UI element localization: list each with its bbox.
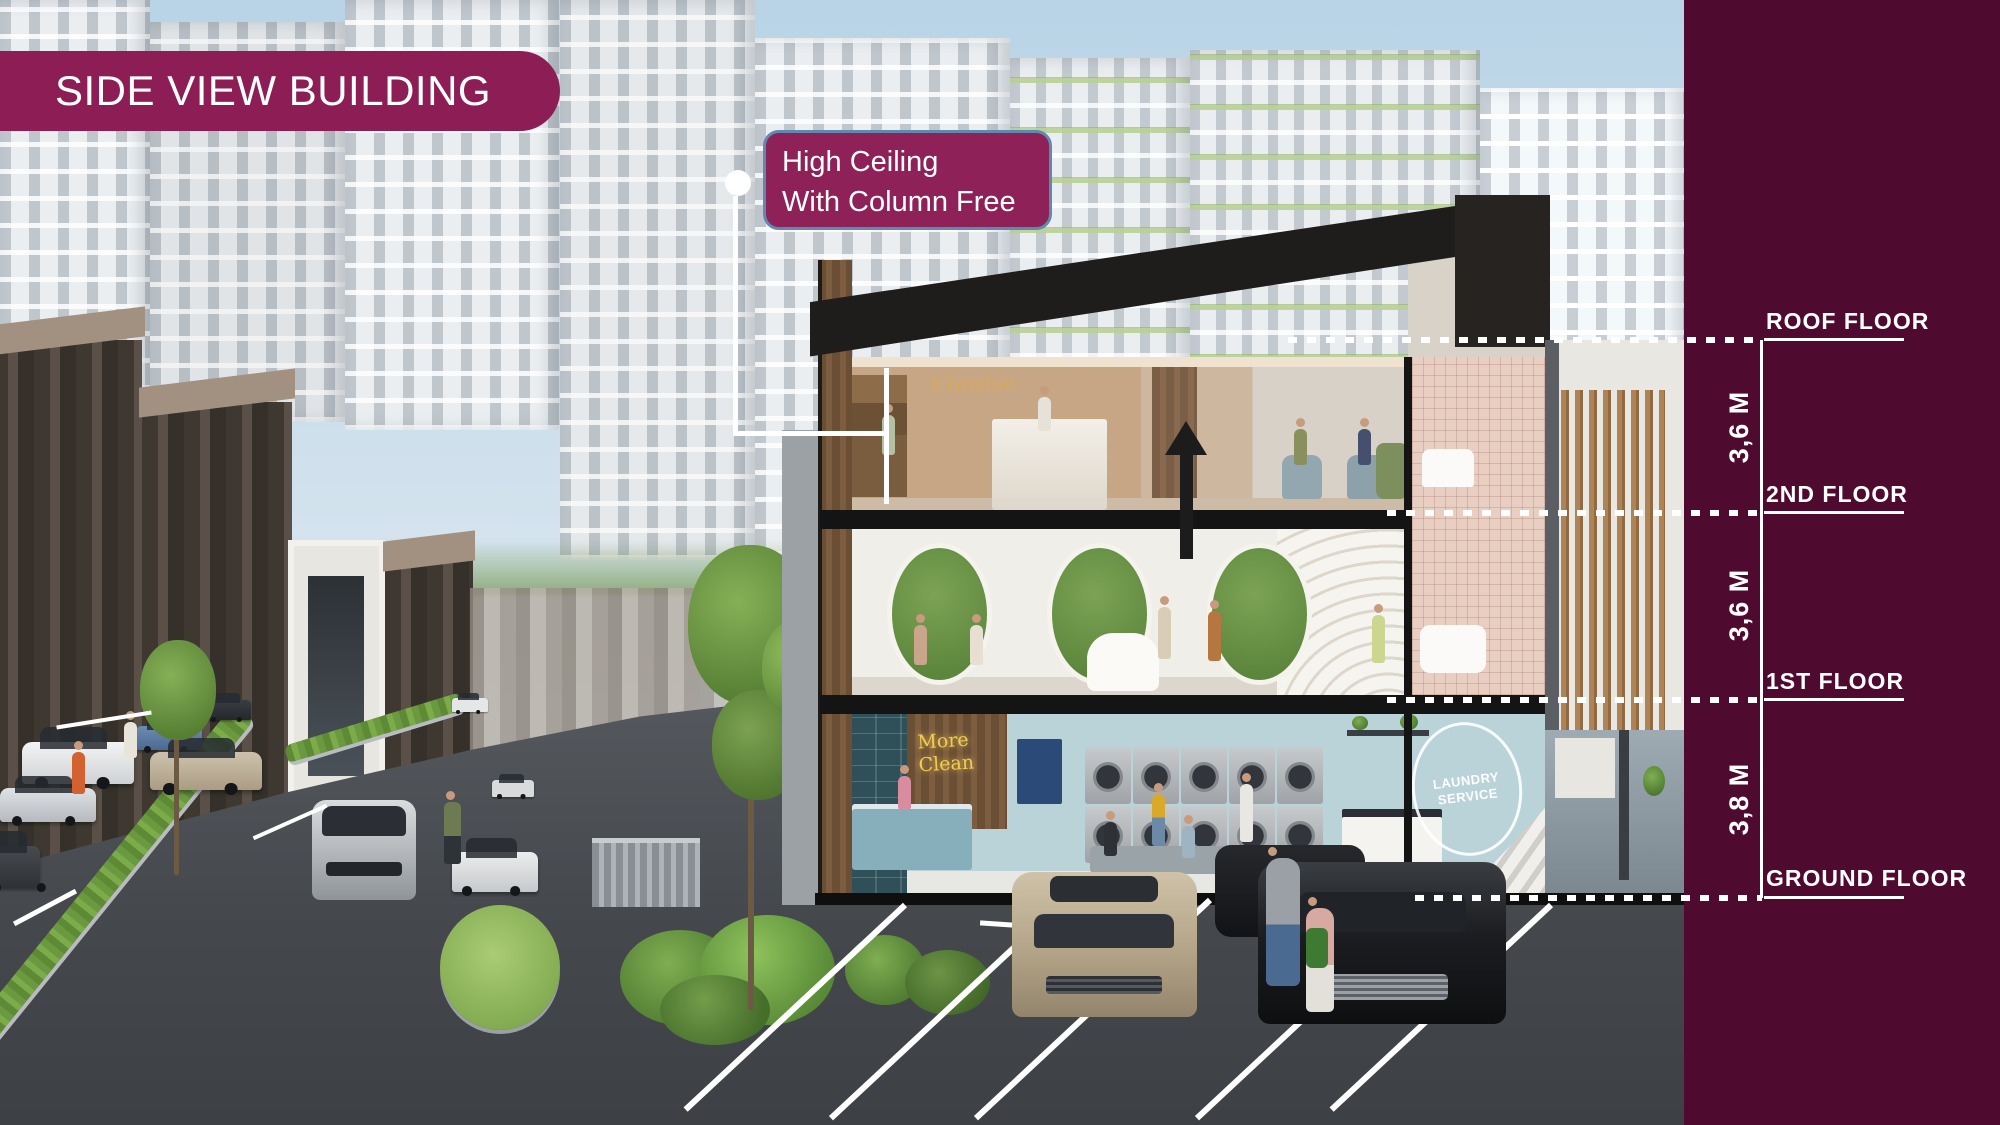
slide-title: SIDE VIEW BUILDING <box>55 67 491 114</box>
dotted-line-ground <box>1415 895 1762 901</box>
door-frame <box>1619 730 1629 880</box>
neon-line1: More <box>917 729 974 755</box>
leader-line-horizontal <box>733 431 886 436</box>
neon-sign: More Clean <box>917 729 975 777</box>
glass-interior <box>1545 730 1684 893</box>
interior-wall <box>1555 738 1615 798</box>
person <box>1240 784 1253 842</box>
driving-car <box>312 800 416 905</box>
label-2nd-floor: 2ND FLOOR <box>1766 481 1908 508</box>
poster <box>1017 739 1062 804</box>
underline <box>1764 338 1904 341</box>
tree-trunk <box>748 770 754 1010</box>
foreground-sedan <box>1012 872 1197 1020</box>
bathroom-strip <box>1412 357 1545 695</box>
person <box>898 776 911 810</box>
moss-mirror <box>1207 543 1312 685</box>
plant <box>1352 716 1368 730</box>
arrow-shaft <box>1180 447 1193 559</box>
pedestrian <box>72 752 85 794</box>
underline <box>1764 698 1904 701</box>
callout-box: High Ceiling With Column Free <box>763 130 1052 230</box>
grille <box>326 862 402 876</box>
washing-machine <box>1181 747 1227 804</box>
backpack <box>1306 928 1328 968</box>
man-figure <box>1266 858 1300 986</box>
person <box>1294 429 1307 465</box>
callout-dot <box>725 170 751 196</box>
jogger <box>444 802 461 864</box>
height-2nd: 3,6 M <box>1722 357 1756 497</box>
salon-sign: Elouise <box>930 369 1017 397</box>
parked-car <box>0 846 40 888</box>
person <box>970 625 983 665</box>
tree <box>140 640 216 740</box>
person <box>1104 822 1117 856</box>
salon-interior: Elouise <box>852 357 1408 510</box>
side-wall <box>782 430 820 905</box>
person <box>1208 611 1221 661</box>
windshield <box>1034 914 1174 948</box>
dotted-line-roof <box>1288 337 1762 343</box>
dotted-line-2nd <box>1387 510 1762 516</box>
shelf <box>1347 730 1429 736</box>
callout-line2: With Column Free <box>782 182 1049 222</box>
parked-car <box>452 852 538 892</box>
dotted-line-1st <box>1387 697 1762 703</box>
floor <box>852 498 1408 510</box>
washing-machine <box>1277 747 1323 804</box>
leader-line-ceiling <box>884 368 889 504</box>
neon-line2: Clean <box>918 751 975 777</box>
person <box>1358 429 1371 465</box>
slide: Elouise <box>0 0 2000 1125</box>
grille <box>1316 974 1448 1000</box>
callout-line1: High Ceiling <box>782 142 1049 182</box>
reception-desk <box>992 419 1107 510</box>
grille <box>1046 976 1162 994</box>
lawn-island <box>440 905 560 1030</box>
laundry-desk <box>852 804 972 870</box>
shelf <box>852 375 907 497</box>
wood-column <box>818 260 852 905</box>
parked-car <box>492 780 534 797</box>
person <box>1038 397 1051 431</box>
background-tower <box>560 0 755 560</box>
label-ground-floor: GROUND FLOOR <box>1766 865 1967 892</box>
bath-fixture <box>1420 625 1486 673</box>
height-ground: 3,8 M <box>1722 729 1756 869</box>
leader-line-vertical <box>733 196 738 436</box>
wood-slats <box>1561 390 1665 730</box>
fin-strip <box>1545 340 1559 730</box>
windshield <box>322 806 406 836</box>
person <box>1182 826 1195 858</box>
tree-trunk <box>174 735 179 875</box>
person <box>1372 615 1385 663</box>
cutaway-building: Elouise <box>780 195 1684 905</box>
person <box>1152 794 1165 846</box>
plant <box>1643 766 1665 796</box>
wall-edge <box>1404 357 1412 893</box>
round-desk <box>1087 633 1159 691</box>
pedestrian <box>124 722 137 758</box>
person <box>1158 607 1171 659</box>
parked-car <box>452 698 488 712</box>
slide-title-badge: SIDE VIEW BUILDING <box>0 51 560 131</box>
measure-line <box>1760 340 1763 898</box>
spa-interior <box>852 529 1408 695</box>
bath-fixture <box>1422 449 1474 487</box>
washing-machine <box>1085 747 1131 804</box>
sunroof <box>1050 876 1158 902</box>
fence <box>592 838 700 907</box>
height-1st: 3,6 M <box>1722 535 1756 675</box>
stair-tower <box>1455 195 1550 347</box>
parked-sedan <box>150 752 262 790</box>
underline <box>1764 896 1904 899</box>
neighbor-facade <box>1545 340 1684 905</box>
underline <box>1764 511 1904 514</box>
label-1st-floor: 1ST FLOOR <box>1766 668 1904 695</box>
label-roof-floor: ROOF FLOOR <box>1766 308 1929 335</box>
person <box>914 625 927 665</box>
arrow-head-icon <box>1165 421 1207 455</box>
ceiling <box>852 357 1408 367</box>
